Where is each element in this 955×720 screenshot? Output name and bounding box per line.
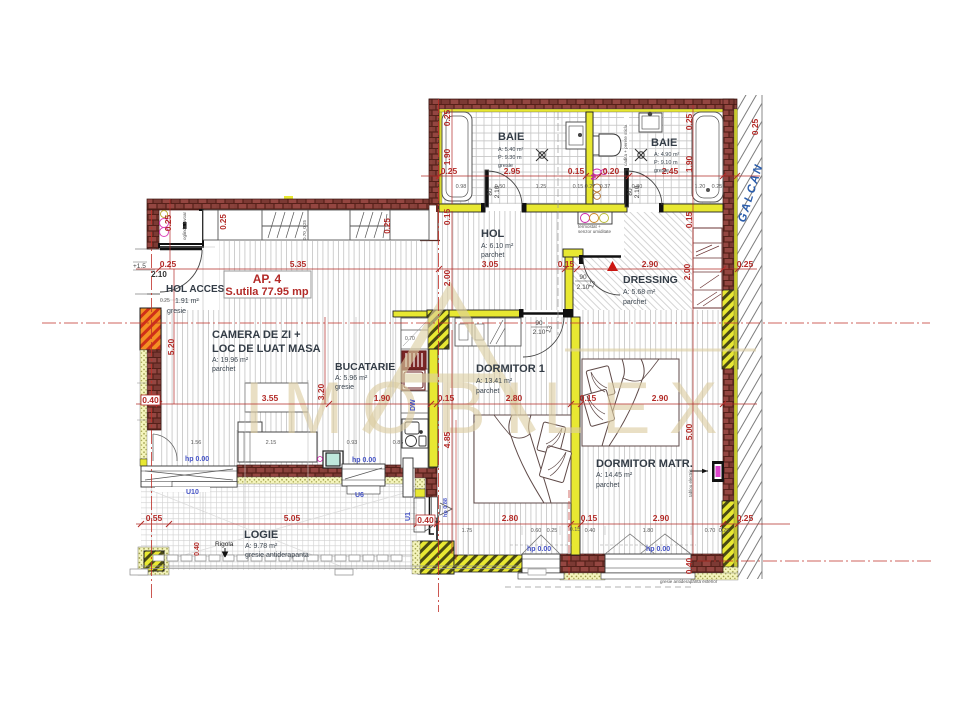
svg-text:U1: U1 [405, 512, 412, 521]
svg-text:5.35: 5.35 [290, 259, 307, 269]
svg-text:3.05: 3.05 [482, 259, 499, 269]
svg-text:HOL: HOL [481, 228, 505, 240]
svg-text:senzor umiditate: senzor umiditate [578, 229, 612, 234]
svg-text:2.00: 2.00 [442, 269, 452, 286]
svg-text:0.98: 0.98 [456, 184, 467, 190]
svg-text:1.25: 1.25 [536, 184, 547, 190]
svg-text:0.25: 0.25 [219, 214, 228, 230]
svg-text:0.25: 0.25 [160, 259, 177, 269]
svg-text:M: M [591, 174, 598, 180]
svg-text:0.25: 0.25 [719, 528, 730, 534]
svg-text:2.90: 2.90 [642, 259, 659, 269]
svg-text:0.25: 0.25 [684, 113, 694, 130]
svg-text:5.05: 5.05 [284, 513, 301, 523]
svg-text:gresie: gresie [167, 308, 186, 315]
svg-text:1.90: 1.90 [374, 393, 391, 403]
svg-text:90: 90 [535, 320, 543, 327]
svg-text:gresie antiderapanta exterior: gresie antiderapanta exterior [660, 579, 718, 584]
svg-text:parchet: parchet [212, 366, 235, 373]
svg-text:0.25: 0.25 [160, 298, 170, 304]
svg-text:2.15: 2.15 [266, 440, 277, 446]
svg-text:U6: U6 [355, 492, 364, 499]
svg-text:S.utila 77.95 mp: S.utila 77.95 mp [225, 286, 308, 298]
svg-text:Rigola: Rigola [215, 541, 234, 548]
svg-text:3.20: 3.20 [316, 383, 326, 400]
svg-text:0.15: 0.15 [438, 393, 455, 403]
svg-text:5.20: 5.20 [166, 338, 176, 355]
svg-text:P: 9.10 m: P: 9.10 m [654, 160, 678, 166]
svg-text:DORMITOR 1: DORMITOR 1 [476, 363, 545, 375]
svg-text:0.27: 0.27 [585, 184, 596, 190]
svg-text:BUCATARIE: BUCATARIE [335, 361, 395, 373]
svg-text:A: 4.90 m²: A: 4.90 m² [654, 152, 680, 158]
svg-text:0.15: 0.15 [684, 211, 694, 228]
svg-text:80: 80 [627, 188, 634, 196]
svg-text:2.90: 2.90 [652, 393, 669, 403]
svg-text:A: 6.10 m²: A: 6.10 m² [481, 243, 514, 250]
svg-text:A: 5.68 m²: A: 5.68 m² [623, 289, 656, 296]
svg-text:2.10: 2.10 [533, 329, 546, 336]
svg-text:1.75: 1.75 [462, 528, 473, 534]
svg-text:0.15: 0.15 [570, 527, 581, 533]
svg-text:4.85: 4.85 [442, 431, 452, 448]
svg-text:0.70_0.25: 0.70_0.25 [302, 219, 307, 240]
svg-text:0.25: 0.25 [737, 513, 754, 523]
svg-text:HOL ACCES: HOL ACCES [166, 284, 225, 295]
svg-text:0.25: 0.25 [383, 218, 392, 234]
svg-text:CAMERA DE ZI +: CAMERA DE ZI + [212, 329, 301, 341]
svg-text:DW: DW [410, 399, 417, 411]
svg-text:+1.5: +1.5 [133, 263, 146, 270]
svg-text:AP. 4: AP. 4 [253, 272, 282, 286]
svg-text:0.40: 0.40 [142, 395, 159, 405]
svg-text:0.40: 0.40 [417, 515, 434, 525]
svg-text:0.15: 0.15 [573, 184, 584, 190]
svg-text:U10: U10 [186, 489, 199, 496]
svg-text:0.25: 0.25 [750, 118, 760, 135]
svg-text:0.15: 0.15 [568, 166, 585, 176]
svg-text:P: 9.30 m: P: 9.30 m [498, 155, 522, 161]
svg-text:A: 14.45 m²: A: 14.45 m² [596, 472, 633, 479]
svg-text:DRESSING: DRESSING [623, 274, 678, 286]
svg-text:2.80: 2.80 [502, 513, 519, 523]
svg-text:hp 0.00: hp 0.00 [527, 546, 551, 553]
svg-text:2.00: 2.00 [682, 263, 692, 280]
svg-text:0.15: 0.15 [442, 208, 452, 225]
svg-text:BAIE: BAIE [651, 137, 677, 149]
svg-text:0.60: 0.60 [531, 528, 542, 534]
svg-text:0.20: 0.20 [603, 166, 620, 176]
svg-text:0.15: 0.15 [558, 259, 575, 269]
svg-text:2.10: 2.10 [151, 270, 167, 279]
svg-text:1.56: 1.56 [191, 440, 202, 446]
svg-text:BAIE: BAIE [498, 131, 524, 143]
svg-text:gresie: gresie [335, 384, 354, 391]
svg-text:tablou electric: tablou electric [688, 468, 693, 497]
svg-text:90: 90 [579, 274, 587, 281]
svg-text:A: 5.96 m²: A: 5.96 m² [335, 375, 368, 382]
svg-text:0.25: 0.25 [737, 259, 754, 269]
svg-text:1.80: 1.80 [643, 528, 654, 534]
svg-text:oglinda lavoar: oglinda lavoar [182, 211, 187, 240]
svg-text:cadita + perete sticla: cadita + perete sticla [623, 124, 628, 166]
svg-text:0.40: 0.40 [585, 528, 596, 534]
svg-text:3.55: 3.55 [262, 393, 279, 403]
svg-text:A: 5.40 m²: A: 5.40 m² [498, 147, 524, 153]
svg-text:parchet: parchet [476, 388, 499, 395]
svg-text:hp 0.00: hp 0.00 [352, 457, 376, 464]
svg-text:parchet: parchet [481, 252, 504, 259]
svg-text:A: 9.78 m²: A: 9.78 m² [245, 543, 278, 550]
svg-text:0.37: 0.37 [600, 184, 611, 190]
svg-text:parchet: parchet [623, 299, 646, 306]
svg-text:0.25: 0.25 [441, 166, 458, 176]
svg-text:0.15: 0.15 [581, 513, 598, 523]
svg-text:0.40: 0.40 [194, 542, 201, 556]
svg-text:2.10: 2.10 [494, 185, 501, 198]
svg-text:0.55: 0.55 [146, 513, 163, 523]
svg-text:gresie: gresie [654, 168, 669, 174]
svg-text:A: 13.41 m²: A: 13.41 m² [476, 378, 513, 385]
svg-text:hp 0.00: hp 0.00 [185, 456, 209, 463]
svg-text:0.93: 0.93 [347, 440, 358, 446]
svg-text:hp 0.88: hp 0.88 [443, 498, 449, 517]
svg-text:1.90: 1.90 [684, 155, 694, 172]
svg-text:0.25: 0.25 [547, 528, 558, 534]
svg-text:gresie antiderapanta: gresie antiderapanta [245, 552, 309, 559]
svg-text:2.10: 2.10 [634, 185, 641, 198]
svg-text:80: 80 [487, 188, 494, 196]
svg-text:0.25: 0.25 [163, 214, 173, 231]
svg-text:0.25: 0.25 [712, 184, 723, 190]
svg-text:0.40: 0.40 [684, 557, 694, 574]
svg-text:LOGIE: LOGIE [244, 529, 278, 541]
svg-text:1.91 m²: 1.91 m² [175, 298, 199, 305]
svg-text:2.80: 2.80 [506, 393, 523, 403]
svg-text:1.90: 1.90 [442, 148, 452, 165]
svg-text:A: 19.96 m²: A: 19.96 m² [212, 357, 249, 364]
svg-text:0.25: 0.25 [442, 109, 452, 126]
svg-text:0.15: 0.15 [580, 393, 597, 403]
svg-text:gresie: gresie [498, 163, 513, 169]
svg-text:parchet: parchet [596, 482, 619, 489]
svg-text:2.90: 2.90 [653, 513, 670, 523]
svg-text:5.00: 5.00 [684, 423, 694, 440]
svg-text:0.85: 0.85 [393, 440, 404, 446]
svg-text:0.70: 0.70 [705, 528, 716, 534]
svg-text:hp 0.00: hp 0.00 [646, 546, 670, 553]
svg-text:1.20: 1.20 [695, 184, 706, 190]
svg-text:DORMITOR MATR.: DORMITOR MATR. [596, 458, 693, 470]
svg-text:LOC DE LUAT MASA: LOC DE LUAT MASA [212, 343, 321, 355]
